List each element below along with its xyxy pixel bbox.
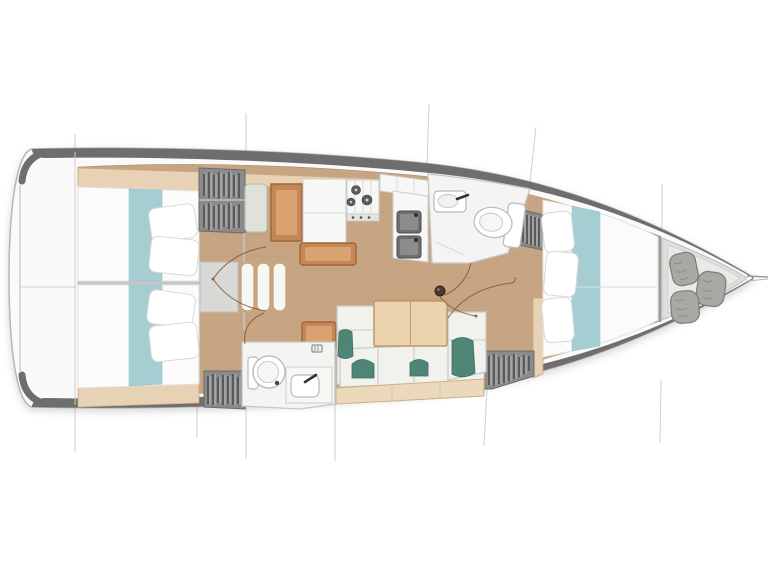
bowsprit-line (747, 276, 768, 277)
accent-pillow (338, 330, 353, 359)
accent-pillow (452, 338, 475, 377)
floor-plan-canvas (0, 0, 768, 576)
galley-stove (347, 180, 379, 221)
faucet (414, 238, 418, 242)
section-line-fwd-lower (484, 389, 487, 446)
mast (435, 286, 445, 296)
pillow (148, 322, 200, 363)
hanging-locker-salon (484, 351, 534, 389)
companionway-step (257, 263, 270, 311)
faucet (414, 213, 418, 217)
yacht-floor-plan (0, 0, 768, 576)
accent-pillow (410, 360, 428, 377)
sail-bag (695, 270, 727, 308)
accent-pillow (352, 360, 374, 379)
companionway-step (273, 263, 286, 311)
pillow (543, 251, 579, 298)
mast-position (435, 286, 445, 296)
chart-table-top (276, 190, 297, 235)
pillow (148, 236, 200, 277)
sail-bag (670, 290, 700, 324)
head-sink (291, 375, 319, 397)
aft-cabin-starboard (78, 285, 200, 388)
aft-head (242, 342, 335, 409)
section-line-fwd-upper (530, 127, 536, 182)
salon-sideboard (300, 243, 356, 265)
pillow (541, 211, 575, 254)
section-line-bow-lower (660, 380, 661, 443)
nav-seat (245, 184, 267, 232)
section-line-mast-upper (427, 104, 429, 167)
salon-table (374, 301, 447, 346)
hanging-locker-aft-port (199, 168, 245, 233)
pillow (541, 297, 575, 343)
hanging-locker-aft-starboard (204, 371, 245, 409)
